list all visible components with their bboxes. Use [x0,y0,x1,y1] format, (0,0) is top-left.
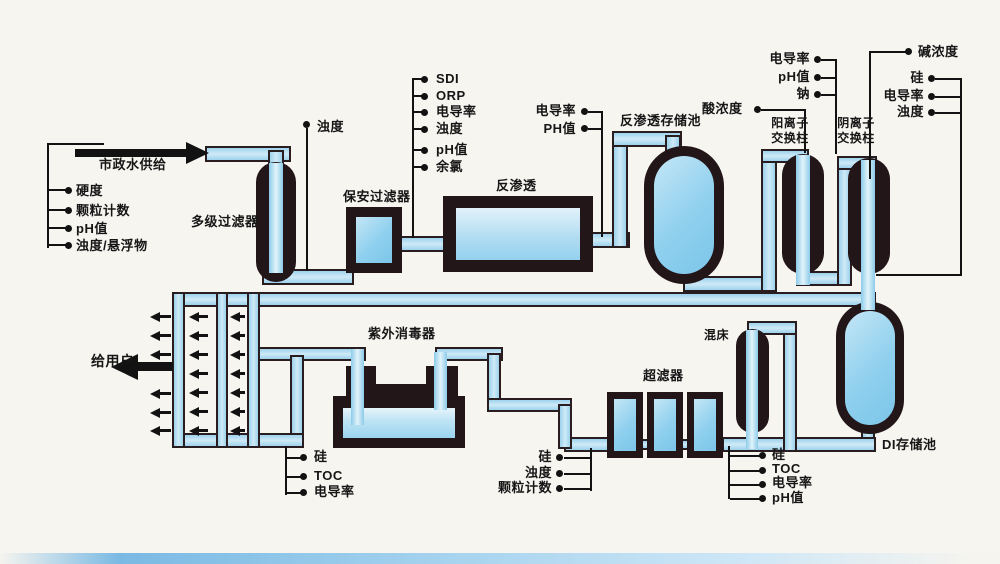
annotation-line [306,128,308,271]
label-uv: 紫外消毒器 [368,326,436,341]
param-orp: ORP [436,88,466,103]
label-ro: 反渗透 [496,178,537,193]
annotation-line [601,111,603,237]
cation-column-pipe [796,155,810,285]
multistage-filter-pipe [269,163,283,273]
param-hardness: 硬度 [76,183,103,198]
uf-module-1-fill [614,399,636,451]
param-conductivity-ro: 电导率 [516,103,576,118]
annotation-line [728,446,730,499]
flow-arrow-tail [239,353,245,356]
param-turbidity-uf: 浊度 [480,465,552,480]
flow-arrow-tail [198,315,208,318]
param-conductivity-cation: 电导率 [748,51,810,66]
ro-fill [456,208,580,260]
param-ph-1: pH值 [436,142,468,157]
label-multistage-filter: 多级过滤器 [191,214,259,229]
flow-arrow-tail [198,353,208,356]
flow-arrow-tail [159,334,171,337]
decorative-bottom-strip [0,553,1000,564]
flow-arrow-tail [159,315,171,318]
param-particle-count: 颗粒计数 [76,203,130,218]
param-conductivity-1: 电导率 [436,104,477,119]
annotation-line [960,78,962,276]
label-ro-tank: 反渗透存储池 [620,113,701,128]
param-sdi: SDI [436,71,459,86]
flow-arrow-tail [239,429,245,432]
param-conductivity-polish: 电导率 [772,475,813,490]
param-conductivity-anion: 电导率 [858,88,924,103]
param-alkali: 碱浓度 [918,44,959,59]
feed-arrow-shaft [75,149,188,157]
param-turbidity-top: 浊度 [317,119,344,134]
to-user-arrow-shaft [137,362,173,371]
param-ph: pH值 [76,221,108,236]
feed-arrow-icon [186,142,209,164]
param-residual-chlorine: 余氯 [436,159,463,174]
pipe-dist-wall-left [172,292,185,448]
annotation-line [412,78,414,238]
pipe-dist-wall-3 [247,292,260,448]
param-silica-polish: 硅 [772,447,786,462]
annotation-line [285,446,287,495]
process-flow-diagram: 市政水供给 多级过滤器 保安过滤器 反渗透 反渗透存储池 阳离子 交换柱 阴离子… [0,0,1000,564]
mixed-bed-pipe [746,330,758,449]
pipe-loop-top-rail [172,292,876,307]
param-silica-uf: 硅 [480,449,552,464]
pipe-mixedbed-riser [783,321,797,452]
security-filter-fill [356,217,392,263]
uv-drop-pipe-left [351,349,364,425]
di-storage-fill [845,311,895,425]
anion-column-pipe [861,160,875,310]
label-to-user: 给用户 [91,354,135,369]
label-mixed-bed: 混床 [704,328,729,343]
param-turbidity-ss: 浊度/悬浮物 [76,238,148,253]
param-particle-count-uf: 颗粒计数 [480,480,552,495]
annotation-line [590,448,592,491]
label-cation-column: 阳离子 交换柱 [766,116,814,146]
param-silica-anion: 硅 [858,70,924,85]
param-ph-cation: pH值 [748,69,810,84]
param-turbidity-1: 浊度 [436,121,463,136]
param-ph-ro: PH值 [516,121,576,136]
param-silica-uv: 硅 [314,449,328,464]
flow-arrow-tail [239,315,245,318]
label-feed: 市政水供给 [99,157,167,172]
flow-arrow-tail [198,334,208,337]
pipe-dist-wall-2 [216,292,228,448]
pipe-ro-riser [612,131,628,248]
param-conductivity-uv: 电导率 [314,484,355,499]
param-toc-polish: TOC [772,461,801,476]
flow-arrow-tail [159,429,171,432]
flow-arrow-tail [239,372,245,375]
flow-arrow-tail [239,410,245,413]
flow-arrow-tail [239,334,245,337]
ro-storage-fill [654,156,714,274]
flow-arrow-tail [159,411,171,414]
param-sodium: 钠 [748,86,810,101]
annotation-line [47,143,49,248]
uf-module-2-fill [654,399,676,451]
param-turbidity-anion: 浊度 [858,104,924,119]
param-toc-uv: TOC [314,468,343,483]
flow-arrow-tail [159,392,171,395]
annotation-line [47,143,104,145]
label-security-filter: 保安过滤器 [343,189,411,204]
flow-arrow-tail [239,391,245,394]
flow-arrow-tail [198,410,208,413]
pipe-uf-step [558,404,572,449]
flow-arrow-tail [159,353,171,356]
uv-drop-pipe-right [434,352,447,410]
uf-module-3-fill [694,399,716,451]
flow-arrow-tail [198,391,208,394]
param-acid: 酸浓度 [702,101,743,116]
param-ph-polish: pH值 [772,490,804,505]
label-uf: 超滤器 [643,368,684,383]
flow-arrow-tail [198,372,208,375]
label-anion-column: 阴离子 交换柱 [832,116,880,146]
pipe-cation-riser [761,149,777,292]
flow-arrow-tail [198,429,208,432]
pipe-uv-rail-left [253,347,366,361]
label-di-tank: DI存储池 [882,437,937,452]
